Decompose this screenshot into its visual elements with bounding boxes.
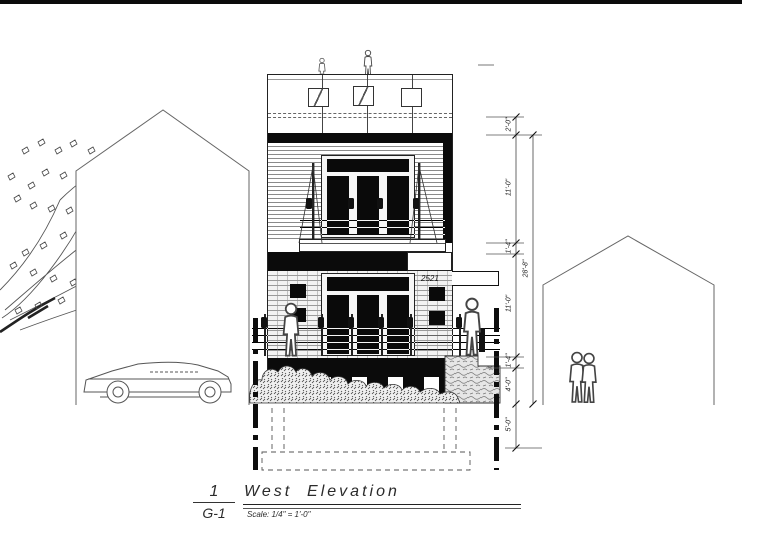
shrubs bbox=[250, 366, 460, 403]
foreground-overlay bbox=[0, 0, 768, 538]
fraction-rule bbox=[193, 502, 235, 503]
dim-label: 5'-0" bbox=[506, 403, 513, 447]
elevation-drawing-sheet: 2'-0" 11'-0" 1'-4" 11'-0" 1'-4" 4'-0" 5'… bbox=[0, 0, 768, 538]
dim-label: 1'-4" bbox=[506, 225, 513, 269]
dim-label: 11'-0" bbox=[506, 166, 513, 210]
scale-note: Scale: 1/4" = 1'-0" bbox=[247, 510, 310, 519]
title-rule-top bbox=[243, 504, 521, 505]
dim-label: 2'-0" bbox=[506, 103, 513, 147]
drawing-title: West Elevation bbox=[244, 483, 400, 501]
foundation-dashed-lines bbox=[262, 408, 470, 470]
dim-label: 4'-0" bbox=[506, 363, 513, 407]
sheet-reference: G-1 bbox=[193, 505, 235, 521]
detail-number: 1 bbox=[196, 483, 232, 501]
dim-label: 11'-0" bbox=[506, 282, 513, 326]
house-number: 2521 bbox=[421, 274, 439, 283]
dim-label-overall: 28'-8" bbox=[523, 247, 530, 291]
title-rule-bottom bbox=[243, 508, 521, 509]
